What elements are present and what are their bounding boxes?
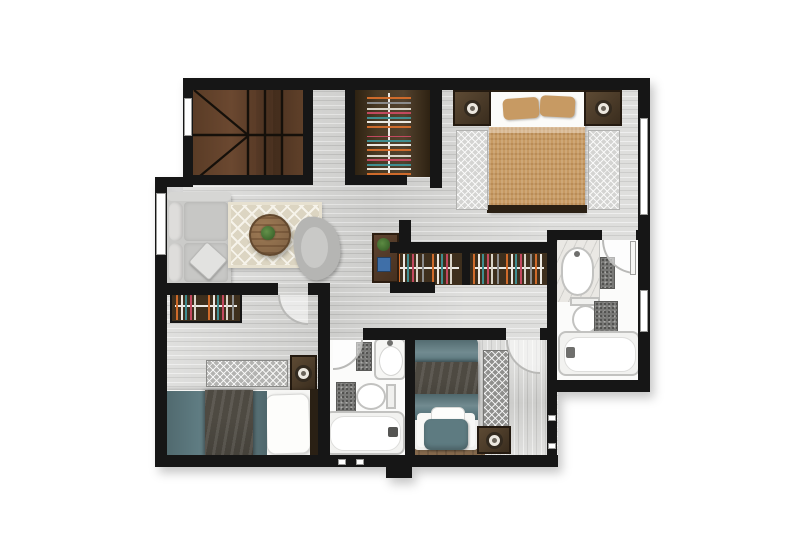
faucet	[574, 251, 580, 257]
main-bed-footboard	[487, 205, 587, 213]
sofa-back-cushion	[169, 243, 183, 282]
toilet-tank	[386, 384, 396, 409]
main-bed-pillow	[539, 95, 575, 118]
window-tick	[548, 415, 556, 421]
wall-bedroom-main-south	[390, 242, 555, 253]
wall-desk-nook	[399, 220, 411, 252]
wall-closet-separator	[462, 252, 470, 285]
nightstand	[477, 426, 511, 454]
sofa-back-cushion	[169, 202, 183, 241]
bath-faucet	[566, 347, 575, 358]
wall-closet-a-south	[390, 282, 435, 293]
wall-north	[183, 78, 650, 90]
table-plant	[261, 226, 275, 240]
nightstand	[453, 90, 491, 126]
wall-bedroom2-north-b	[308, 283, 318, 295]
wall-bedroom-main-west	[430, 78, 442, 188]
runner-rug	[588, 130, 620, 210]
bath-faucet	[388, 427, 398, 437]
wall-bathroom2-east	[405, 328, 415, 467]
desk-laptop	[377, 257, 391, 272]
bedroom2-bed-pillow	[265, 393, 311, 454]
nightstand	[290, 355, 317, 392]
hanging-clothes	[367, 155, 411, 175]
window-bedroom-main-east	[640, 118, 648, 215]
armchair-seat	[301, 227, 328, 268]
wall-bedroom3-north-a	[415, 328, 506, 340]
bedroom3-bed-pillow	[424, 419, 468, 450]
hanging-clothes	[473, 254, 499, 284]
hanging-clothes	[367, 94, 411, 128]
window-tick	[356, 459, 364, 465]
hanging-clothes	[398, 254, 426, 284]
window-ensuite-east	[640, 290, 648, 332]
runner-rug	[483, 350, 509, 430]
main-bed-pillow	[502, 97, 539, 120]
floorplan-stage	[0, 0, 800, 533]
wall-stair-east	[303, 88, 313, 185]
wall-bedroom2-east	[318, 283, 330, 467]
bedroom2-rug	[206, 360, 288, 387]
wall-ensuite-south	[547, 380, 650, 392]
runner-rug	[456, 130, 488, 210]
door-leaf-ensuite	[630, 241, 636, 275]
sink-basin	[379, 346, 403, 376]
bedroom2-bed-throw	[205, 390, 253, 456]
lamp	[595, 100, 612, 117]
window-tick	[548, 443, 556, 449]
sofa-seat-cushion	[184, 202, 228, 241]
hanging-clothes	[176, 292, 200, 320]
hanging-clothes	[367, 136, 411, 151]
nightstand	[584, 90, 622, 126]
hanging-clothes	[506, 254, 544, 284]
wall-bedroom2-north-a	[155, 283, 278, 295]
lamp	[486, 432, 503, 449]
window-stair-west	[184, 98, 192, 136]
wall-closet-south	[345, 175, 407, 185]
main-bed-blanket-fold	[489, 127, 585, 133]
bath-mat	[594, 301, 618, 334]
staircase-treads	[193, 88, 303, 183]
toilet	[356, 383, 386, 410]
wall-northwest-connector	[155, 177, 193, 187]
staircase	[193, 88, 303, 183]
hanging-clothes	[208, 292, 236, 320]
wall-ensuite-north-a	[547, 230, 602, 240]
sofa-armrest	[167, 192, 231, 201]
lamp	[464, 100, 481, 117]
wall-ensuite-west	[547, 230, 557, 467]
desk-plant	[377, 238, 390, 251]
bath-mat	[336, 382, 356, 414]
window-tick	[338, 459, 346, 465]
lamp	[295, 365, 312, 382]
wall-stair-south	[183, 175, 313, 185]
faucet	[387, 340, 393, 346]
window-living-west	[156, 193, 166, 255]
wall-closet-west	[345, 88, 355, 185]
main-bed-blanket	[489, 127, 585, 205]
floorplan	[0, 0, 800, 533]
hanging-clothes	[432, 254, 456, 284]
